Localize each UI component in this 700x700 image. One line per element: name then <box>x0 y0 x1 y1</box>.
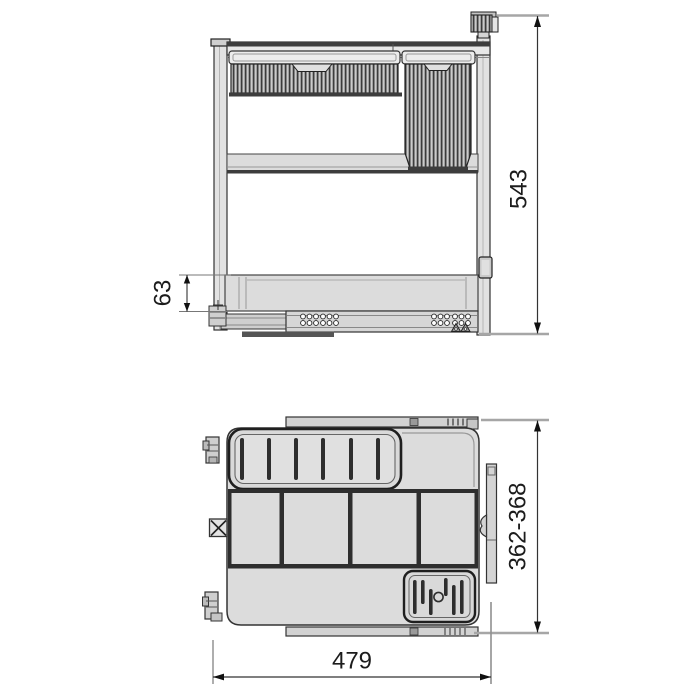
dim-label-543: 543 <box>506 169 533 209</box>
top-plan-view: 362-368 479 <box>203 417 550 684</box>
plan-right-bracket <box>480 464 496 583</box>
plan-drainer-tray <box>404 571 475 622</box>
plan-left-clip-bottom <box>203 592 223 621</box>
plan-slatted-tray <box>229 429 401 489</box>
left-basket <box>229 51 402 97</box>
dim-label-479: 479 <box>332 648 372 675</box>
plan-back-rail <box>286 417 478 429</box>
dim-label-63: 63 <box>150 280 177 307</box>
right-bin-handle-notch <box>424 64 452 71</box>
right-post-bracket <box>479 257 492 278</box>
plan-left-clip-top <box>203 437 219 463</box>
top-knob <box>471 12 498 38</box>
left-basket-handle-notch <box>292 64 332 72</box>
front-elevation-view: 543 63 <box>150 12 550 337</box>
plan-left-clip-middle <box>210 519 228 537</box>
dim-label-362-368: 362-368 <box>505 482 532 570</box>
right-tall-bin <box>402 51 475 171</box>
right-post <box>477 36 490 335</box>
technical-drawing-page: 543 63 <box>0 0 700 700</box>
bottom-panel <box>225 275 478 311</box>
drawing-canvas: 543 63 <box>0 0 700 700</box>
plan-front-rail <box>286 627 478 636</box>
